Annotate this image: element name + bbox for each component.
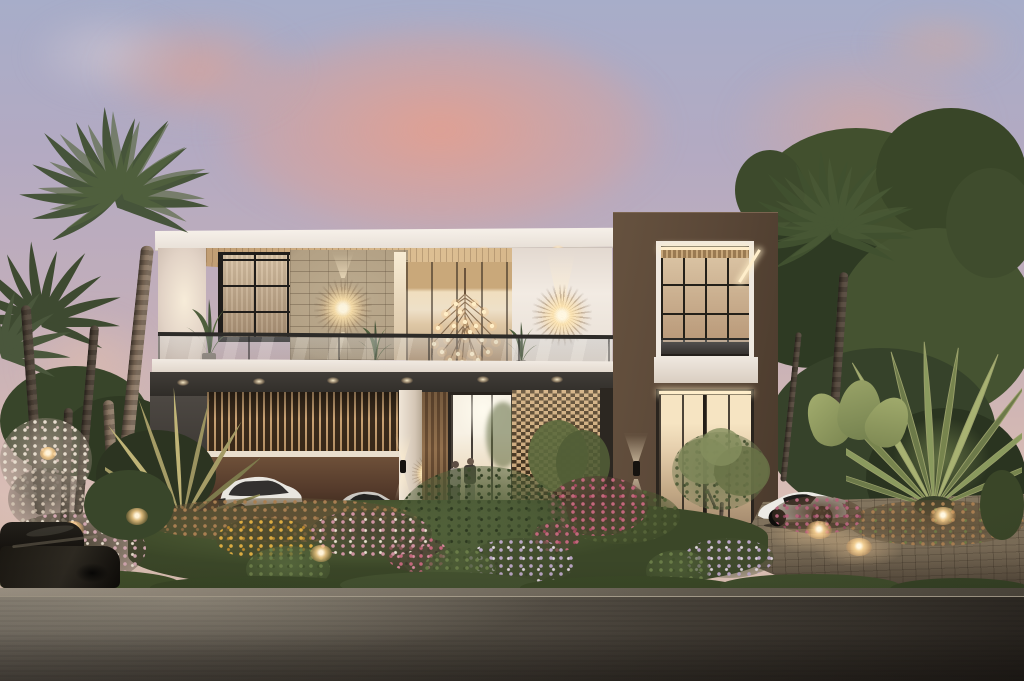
palm-tree-left-small — [0, 275, 75, 385]
driveway-ground-light — [846, 538, 872, 556]
recess-wood-ceiling — [661, 250, 749, 258]
tower-slab-band — [654, 357, 758, 383]
tower-upper-window-cavity — [661, 246, 749, 356]
right-far-bush — [980, 470, 1024, 540]
palm-tree-left-large — [15, 100, 215, 240]
led-strip — [659, 391, 751, 394]
dark-foreground-car — [0, 518, 122, 606]
tree-canopy-blob — [700, 428, 742, 466]
garden-path-light — [126, 508, 148, 525]
driveway-ground-light — [806, 521, 832, 539]
soffit-downlight-glow — [549, 375, 565, 384]
up-down-wall-sconce — [633, 461, 640, 476]
garden-path-light — [40, 447, 56, 460]
retaining-wall — [0, 596, 1024, 681]
villa-dusk-scene — [0, 0, 1024, 681]
up-down-wall-sconce — [400, 460, 406, 473]
soffit-downlight-glow — [399, 376, 415, 385]
soffit-downlight-glow — [325, 376, 341, 385]
person-head — [452, 461, 459, 468]
soffit-downlight-glow — [475, 375, 491, 384]
driveway-ground-light — [930, 507, 956, 525]
juliet-balcony-glass — [661, 338, 749, 354]
person-head — [467, 458, 474, 465]
tower-upper-window — [661, 258, 749, 344]
sconce-light-cone-up — [624, 433, 648, 463]
garden-path-light — [310, 545, 332, 562]
car-wheel-shadow — [70, 560, 114, 586]
